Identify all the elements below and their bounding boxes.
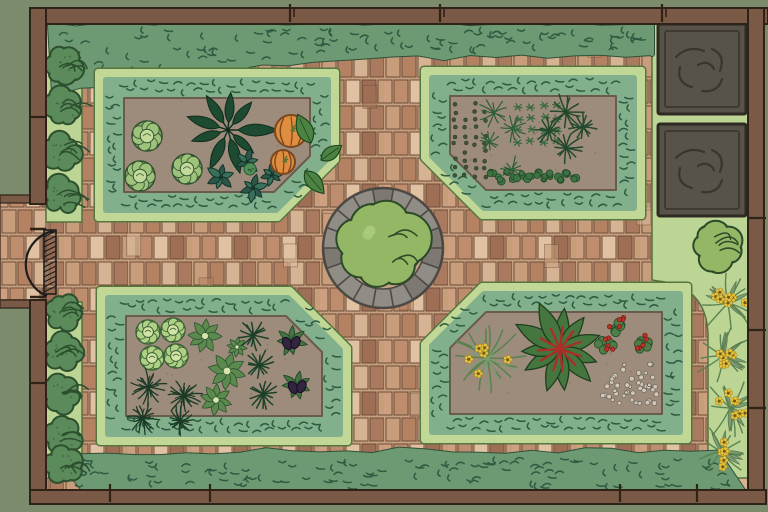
central-circle-feature [323,188,443,308]
compost-bin [658,24,746,114]
wall-left-lower [30,300,46,496]
compost-bin [658,124,746,216]
plant-lettuce [164,344,188,368]
plant-cabbage [125,161,155,191]
bottom-hedge [54,450,744,494]
bed-top-right [424,70,642,216]
bed-bottom-left [100,290,348,442]
wall-bottom [30,490,766,504]
bed-bottom-right [424,286,688,440]
garden-plan-illustration [0,0,768,512]
plant-lettuce [136,320,160,344]
plant-cabbage [172,154,202,184]
wall-left-upper [30,8,46,204]
plant-lettuce [161,318,185,342]
wall-top [30,8,768,24]
plant-broccoli [244,163,256,175]
exterior-gate-path [0,195,48,308]
plant-lettuce [140,346,164,370]
plant-pumpkin [271,150,295,174]
plant-cabbage [132,121,162,151]
gate-leaf [44,230,56,294]
garden-plan-canvas [0,0,768,512]
wall-right [748,8,764,496]
